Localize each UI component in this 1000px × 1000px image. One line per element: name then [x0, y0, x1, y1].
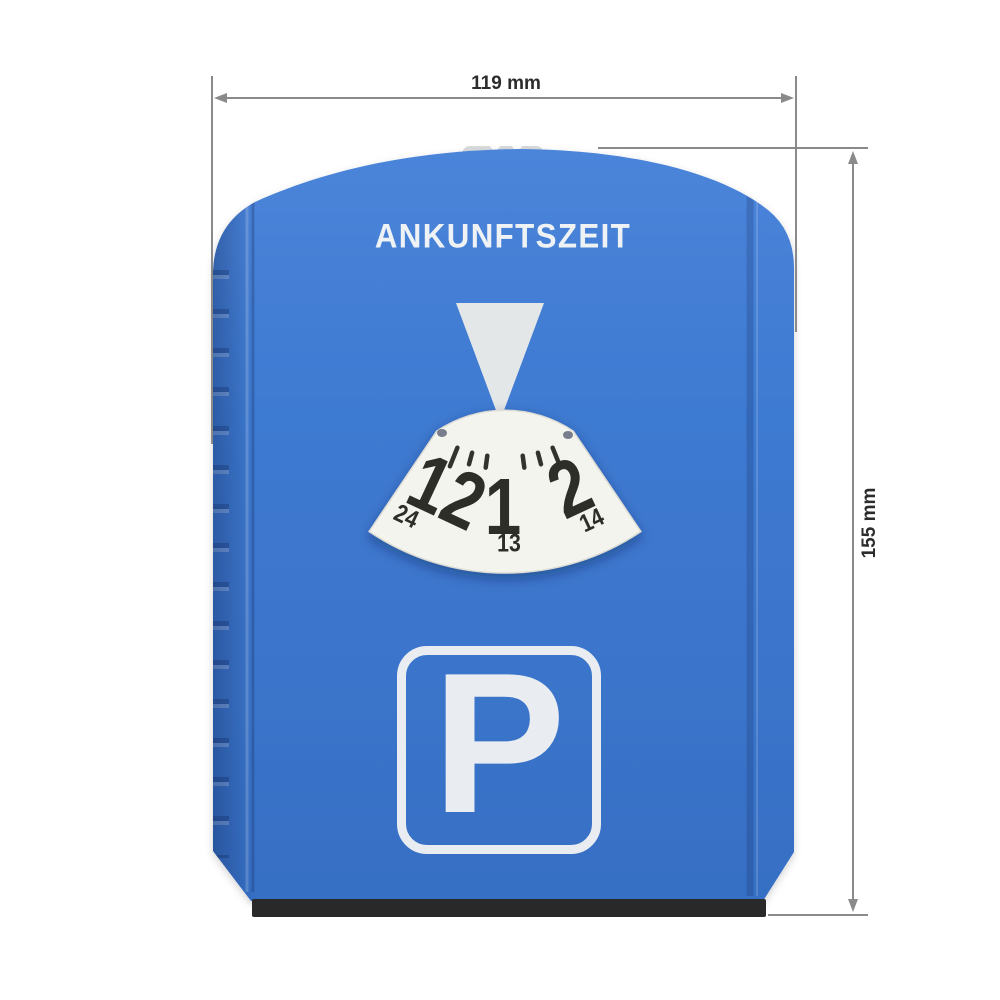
parking-sign: P — [397, 646, 601, 854]
dial-hour-13: 13 — [497, 532, 521, 557]
height-witness-line-bottom — [768, 914, 868, 916]
width-dimension-label: 119 mm — [471, 73, 541, 95]
scraper-strip — [252, 899, 766, 917]
height-arrow-down-icon — [848, 899, 858, 912]
width-dimension-line — [222, 97, 786, 99]
window-corner-shadow — [437, 429, 447, 437]
height-dimension-line — [852, 155, 854, 907]
width-arrow-right-icon — [781, 93, 794, 103]
width-arrow-left-icon — [214, 93, 227, 103]
product-photo-parking-disc: ANKUNFTSZEIT 12 1 2 24 13 14 P 119 mm 15… — [0, 0, 1000, 1000]
arrival-time-heading: ANKUNFTSZEIT — [375, 218, 631, 257]
height-arrow-up-icon — [848, 151, 858, 164]
height-dimension-label: 155 mm — [859, 488, 881, 559]
width-witness-line-left — [211, 76, 213, 444]
window-corner-shadow — [563, 431, 573, 439]
height-witness-line-top — [598, 147, 868, 149]
width-witness-line-right — [795, 76, 797, 332]
parking-sign-letter: P — [432, 644, 565, 844]
